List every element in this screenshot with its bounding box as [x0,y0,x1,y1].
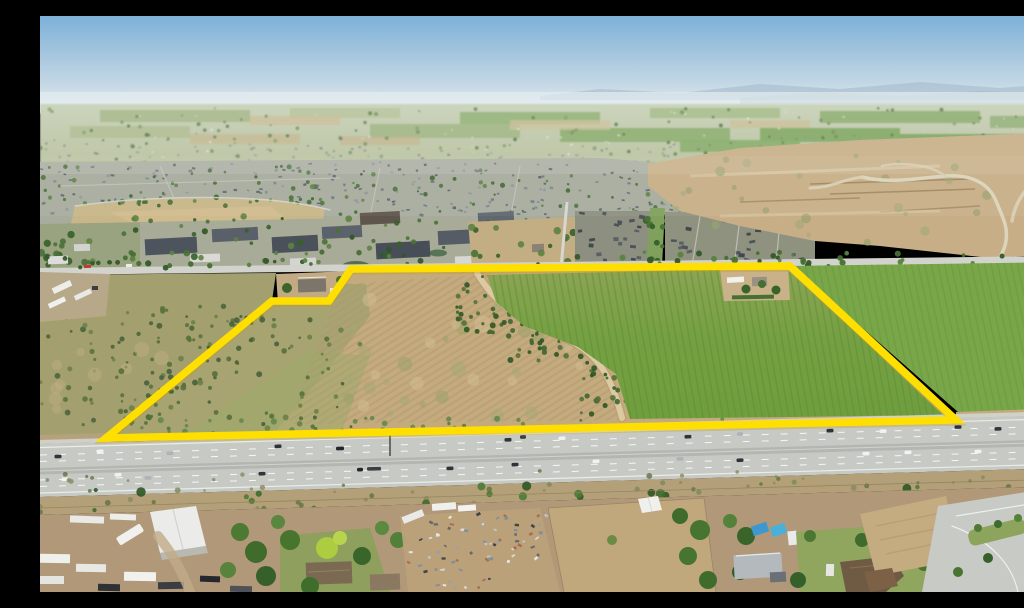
sky [40,16,1024,114]
atmospheric-haze [40,104,1024,216]
aerial-photo: Aerial drone photograph of a large vacan… [40,16,1024,592]
aerial-photo-svg [40,16,1024,592]
